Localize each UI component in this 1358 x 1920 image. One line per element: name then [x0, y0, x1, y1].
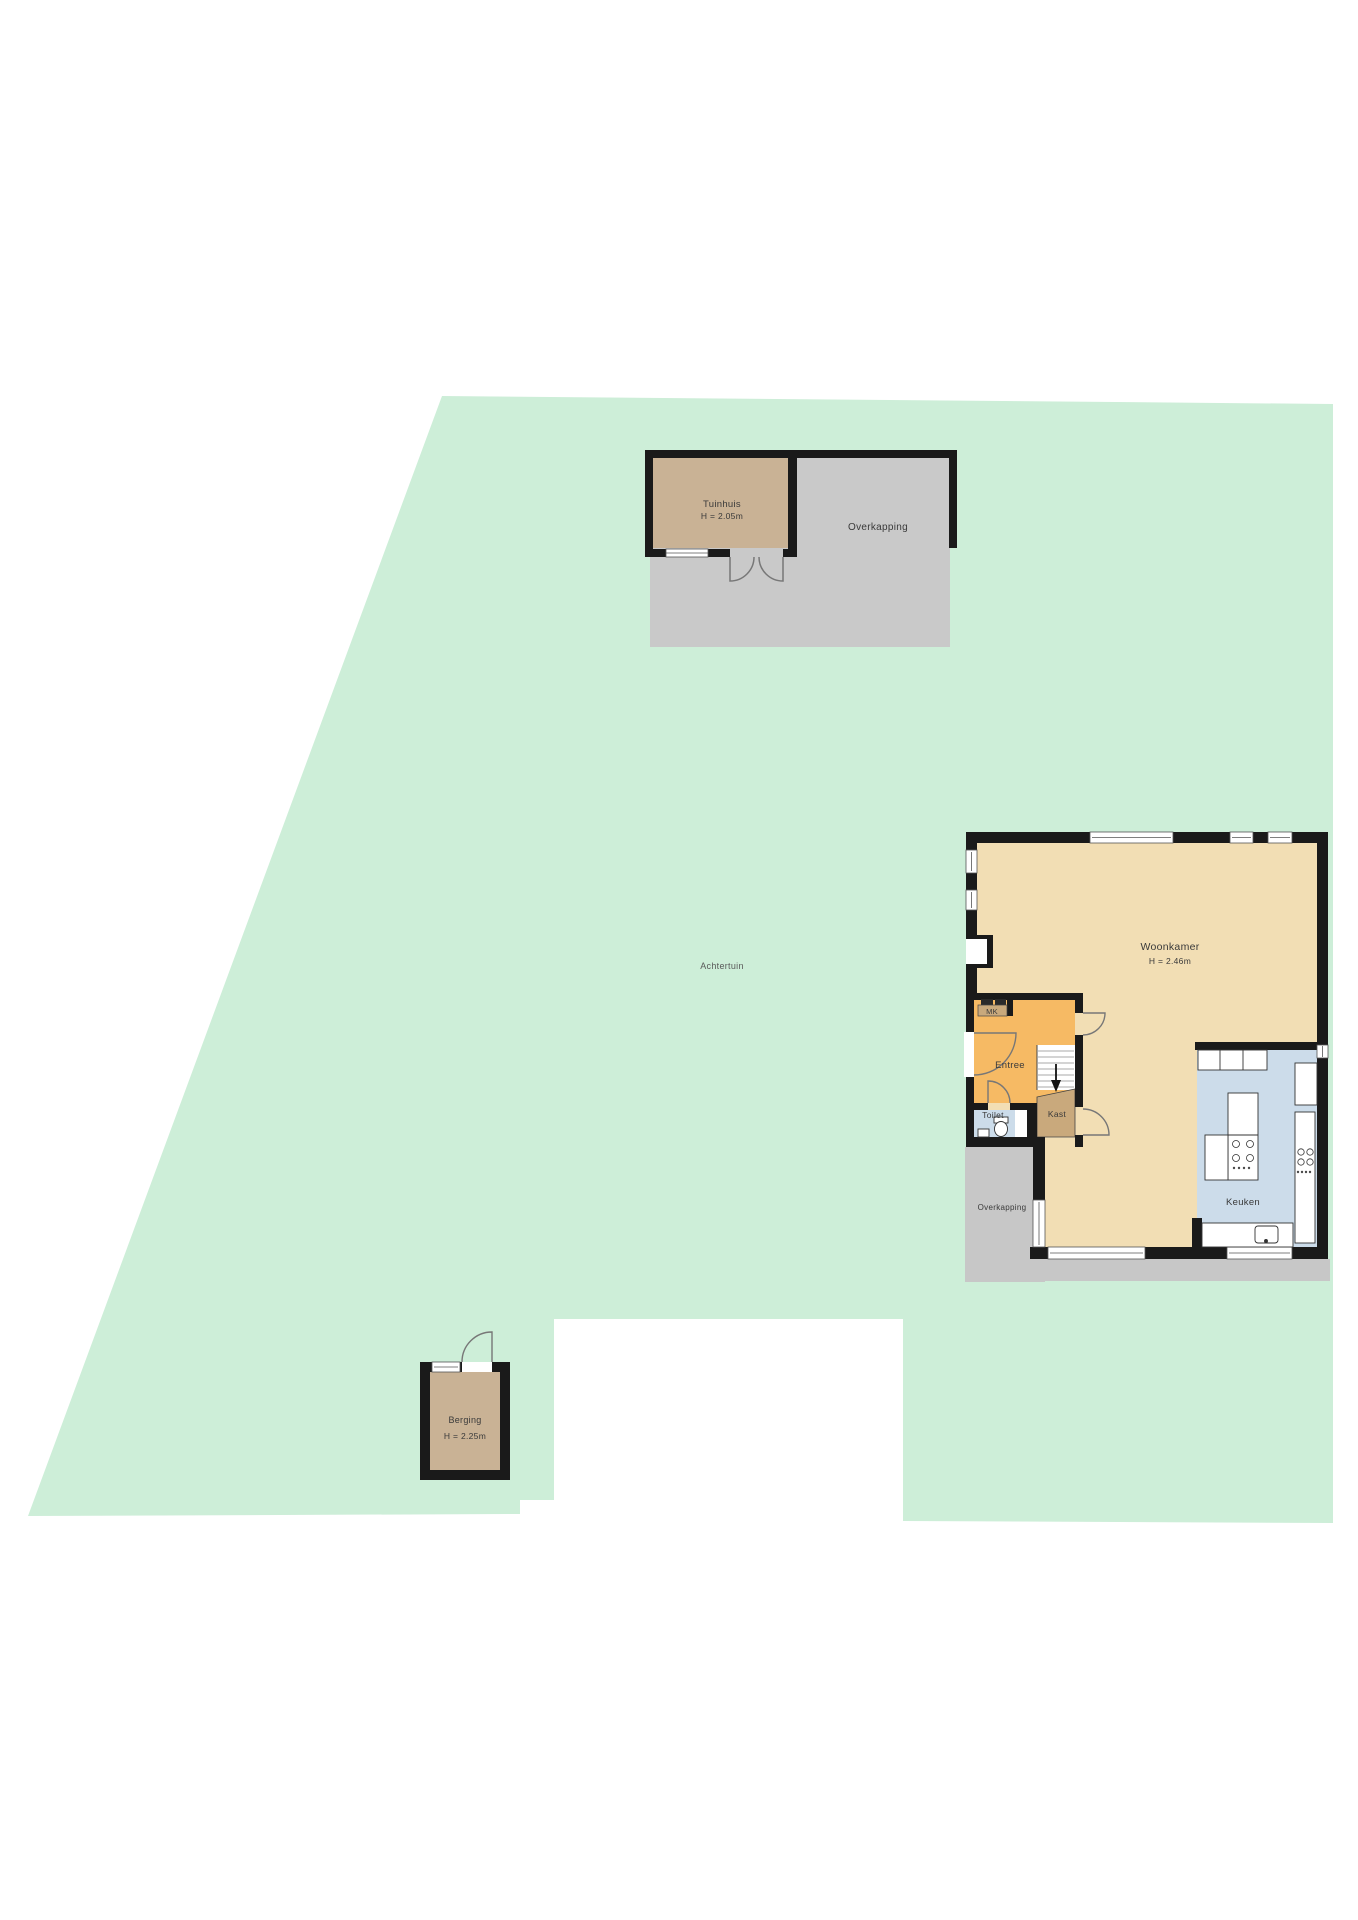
- window-bottom-2: [1227, 1247, 1292, 1259]
- toilet-niche: [1015, 1107, 1027, 1137]
- overkapping-house-label: Overkapping: [978, 1203, 1027, 1212]
- berging-label: Berging: [448, 1415, 481, 1425]
- woonkamer-label: Woonkamer: [1140, 941, 1199, 953]
- window-top-3: [1268, 832, 1292, 843]
- entree-label: Entree: [995, 1060, 1025, 1071]
- kitchen-tall-cabinet: [1295, 1063, 1317, 1105]
- window-right-small: [1317, 1045, 1328, 1058]
- berging-window: [432, 1362, 460, 1372]
- window-left-2: [966, 890, 977, 910]
- keuken-label: Keuken: [1226, 1197, 1260, 1208]
- toilet-sink: [978, 1129, 989, 1137]
- kitchen-island: [1228, 1093, 1258, 1180]
- window-lower-left: [1033, 1200, 1045, 1247]
- window-bottom-1: [1048, 1247, 1145, 1259]
- garden-structure: Tuinhuis H = 2.05m Overkapping: [645, 450, 957, 647]
- overkapping-garden-label: Overkapping: [848, 522, 908, 533]
- overkapping-house-apron: [965, 1259, 1330, 1281]
- tuinhuis-label: Tuinhuis: [703, 499, 741, 510]
- window-top-2: [1230, 832, 1253, 843]
- staircase: [1037, 1045, 1075, 1092]
- kast-label: Kast: [1048, 1109, 1067, 1119]
- house: Woonkamer H = 2.46m Entree MK Toilet Kas…: [964, 832, 1330, 1282]
- berging-height-label: H = 2.25m: [444, 1431, 486, 1441]
- kitchen-island-side-unit: [1205, 1135, 1228, 1180]
- floor-plan-canvas: Tuinhuis H = 2.05m Overkapping Achtertui…: [0, 0, 1358, 1920]
- window-top-1: [1090, 832, 1173, 843]
- window-left-1: [966, 850, 977, 873]
- kitchen-counter-right: [1295, 1112, 1315, 1243]
- toilet-label: Toilet: [982, 1110, 1004, 1120]
- mk-label: MK: [986, 1007, 998, 1016]
- front-door-gap: [964, 1032, 974, 1077]
- woonkamer-height-label: H = 2.46m: [1149, 956, 1191, 966]
- kitchen-counter-bottom: [1202, 1223, 1293, 1247]
- kitchen-counter-top: [1198, 1050, 1267, 1070]
- floor-plan-page: Tuinhuis H = 2.05m Overkapping Achtertui…: [0, 0, 1358, 1920]
- berging-door-gap: [462, 1362, 492, 1372]
- tuinhuis-window: [666, 549, 708, 557]
- left-wall-niche: [966, 935, 993, 968]
- garden-label: Achtertuin: [700, 961, 744, 971]
- tuinhuis-height-label: H = 2.05m: [701, 511, 743, 521]
